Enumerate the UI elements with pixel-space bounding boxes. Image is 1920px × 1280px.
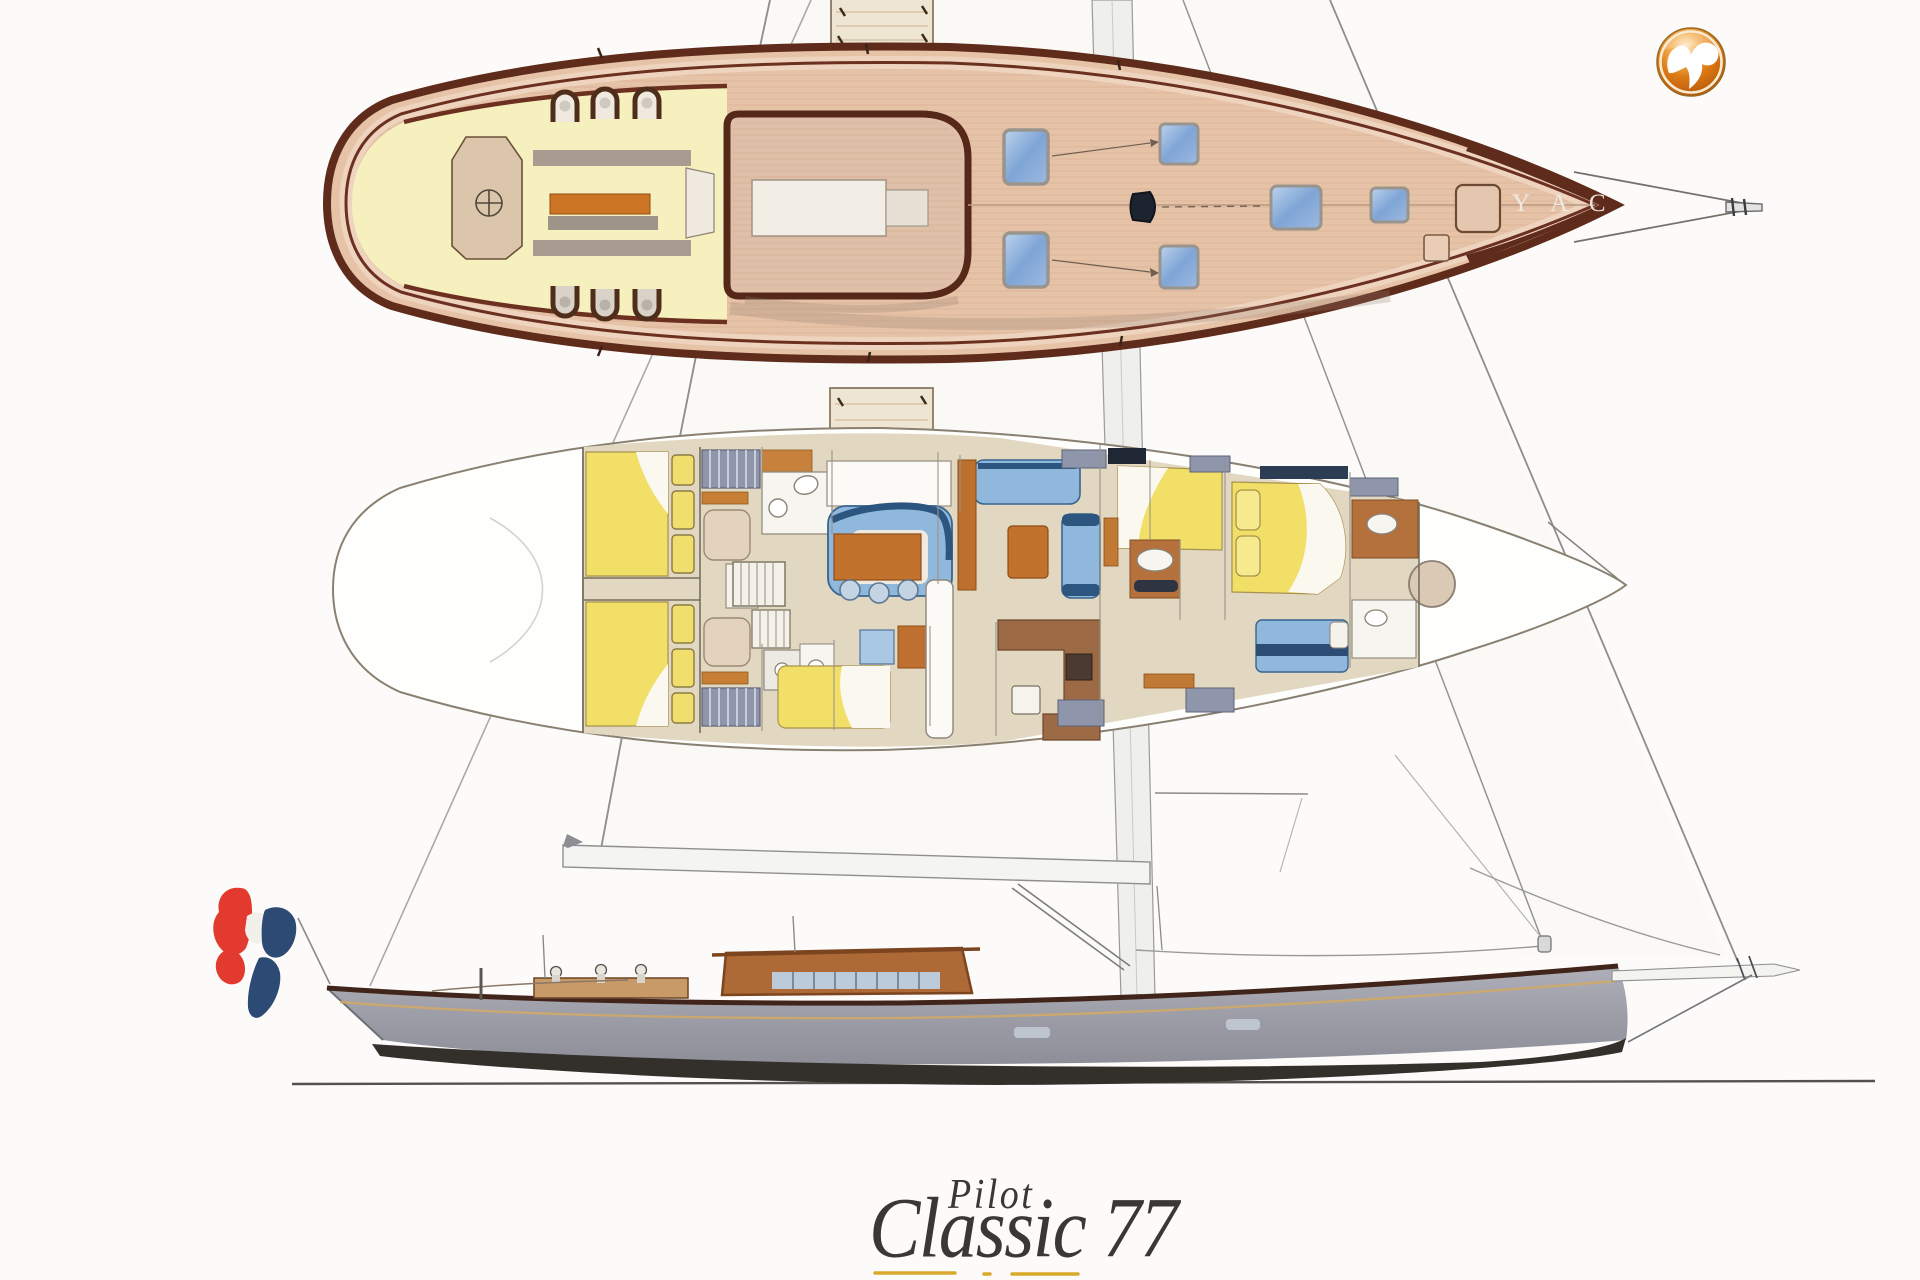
svg-text:Classic 77: Classic 77 (869, 1180, 1181, 1276)
svg-text:Y A C: Y A C (1512, 190, 1614, 217)
